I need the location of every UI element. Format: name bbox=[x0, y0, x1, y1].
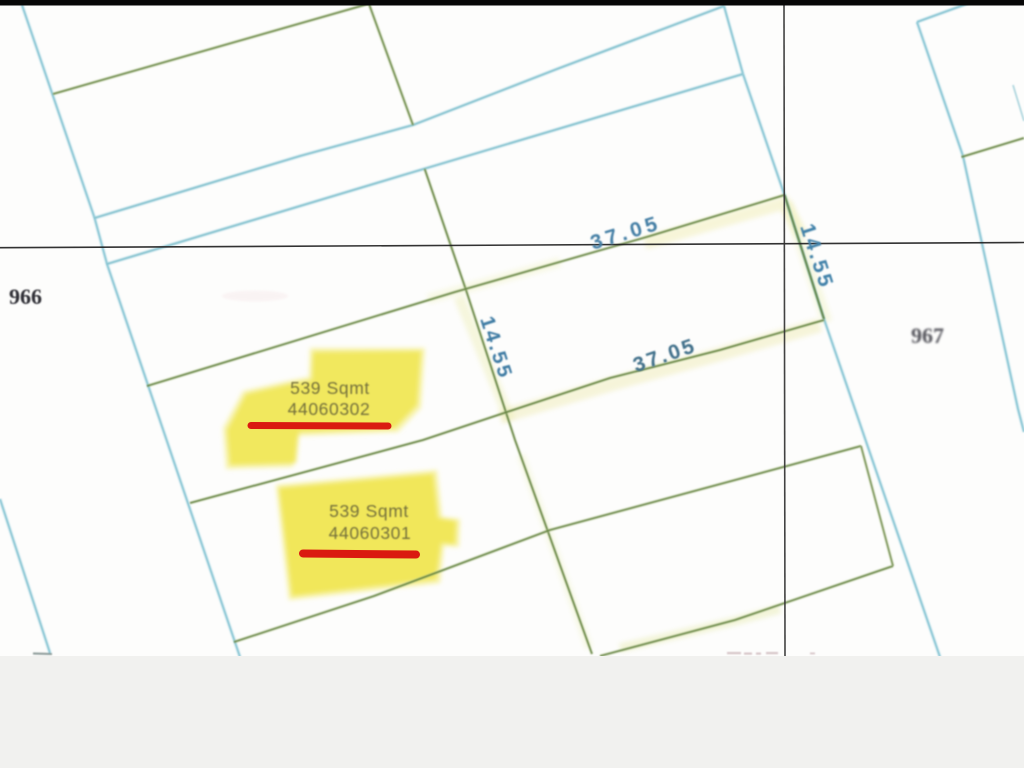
svg-text:967: 967 bbox=[911, 323, 944, 348]
svg-text:44060301: 44060301 bbox=[329, 523, 412, 543]
svg-text:44060302: 44060302 bbox=[288, 399, 371, 419]
svg-text:539 Sqmt: 539 Sqmt bbox=[290, 378, 370, 398]
svg-text:539 Sqmt: 539 Sqmt bbox=[329, 501, 409, 521]
svg-text:966: 966 bbox=[9, 284, 42, 309]
